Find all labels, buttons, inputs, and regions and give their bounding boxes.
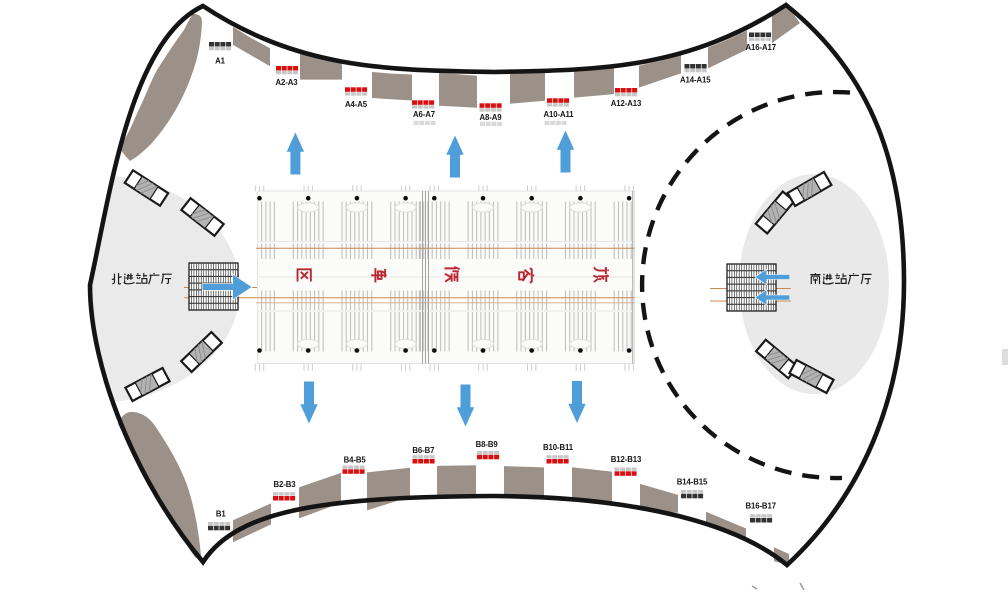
svg-text:A16-A17: A16-A17 xyxy=(746,43,777,52)
svg-text:B10-B11: B10-B11 xyxy=(543,443,574,452)
svg-text:A2-A3: A2-A3 xyxy=(275,78,298,87)
svg-text:B6-B7: B6-B7 xyxy=(412,446,434,455)
svg-text:A6-A7: A6-A7 xyxy=(413,110,435,119)
svg-text:A4-A5: A4-A5 xyxy=(345,100,368,109)
svg-text:A8-A9: A8-A9 xyxy=(479,113,502,122)
svg-text:B1: B1 xyxy=(216,509,227,518)
svg-text:B2-B3: B2-B3 xyxy=(273,480,296,489)
svg-text:A12-A13: A12-A13 xyxy=(611,99,642,108)
svg-text:B4-B5: B4-B5 xyxy=(344,455,367,464)
svg-text:A10-A11: A10-A11 xyxy=(543,110,574,119)
svg-text:B12-B13: B12-B13 xyxy=(611,455,642,464)
svg-text:A1: A1 xyxy=(215,57,226,66)
svg-text:B14-B15: B14-B15 xyxy=(677,478,708,487)
svg-text:B8-B9: B8-B9 xyxy=(476,440,499,449)
svg-text:B16-B17: B16-B17 xyxy=(745,501,776,510)
svg-text:A14-A15: A14-A15 xyxy=(680,75,711,84)
